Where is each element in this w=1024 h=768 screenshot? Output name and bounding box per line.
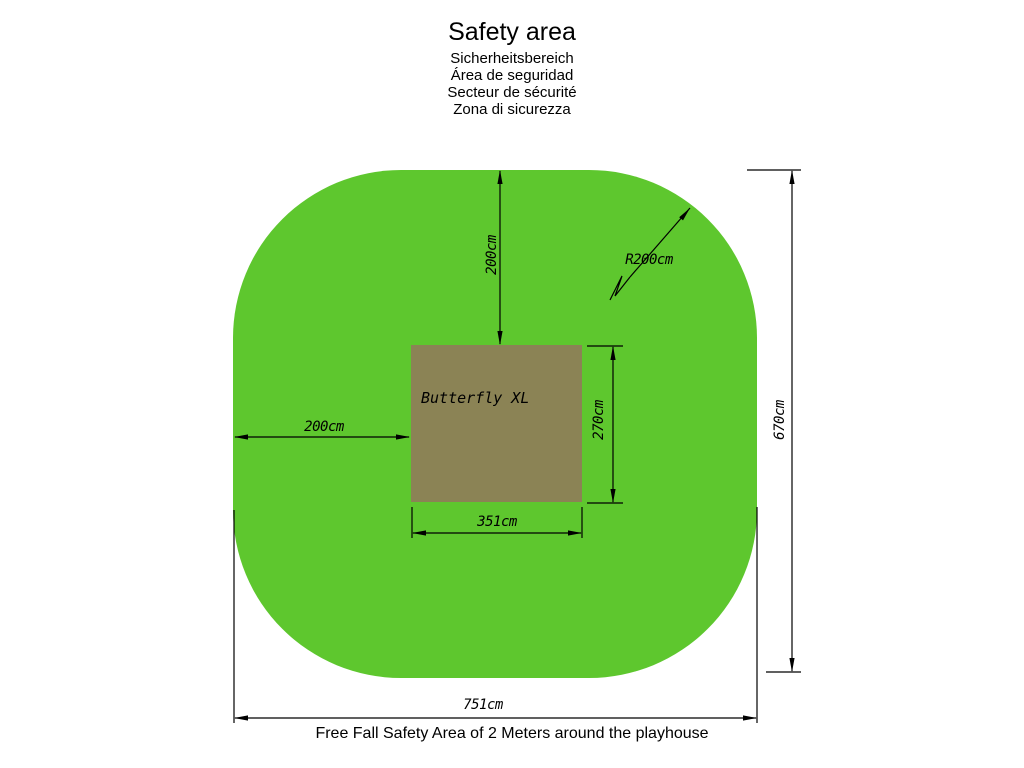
dim-label-playhouse-width: 351cm xyxy=(452,513,542,531)
dim-label-top-clearance: 200cm xyxy=(483,210,501,300)
dimension-lines-layer xyxy=(0,0,1024,768)
dim-line-overall-width xyxy=(234,507,757,723)
dim-label-overall-width: 751cm xyxy=(438,696,528,714)
dim-label-overall-depth: 670cm xyxy=(771,375,789,465)
diagram-canvas: Safety area Sicherheitsbereich Área de s… xyxy=(0,0,1024,768)
footer-caption: Free Fall Safety Area of 2 Meters around… xyxy=(0,725,1024,743)
dim-label-playhouse-depth: 270cm xyxy=(590,375,608,465)
dim-label-corner-radius: R200cm xyxy=(604,251,694,269)
dim-label-left-clearance: 200cm xyxy=(279,418,369,436)
